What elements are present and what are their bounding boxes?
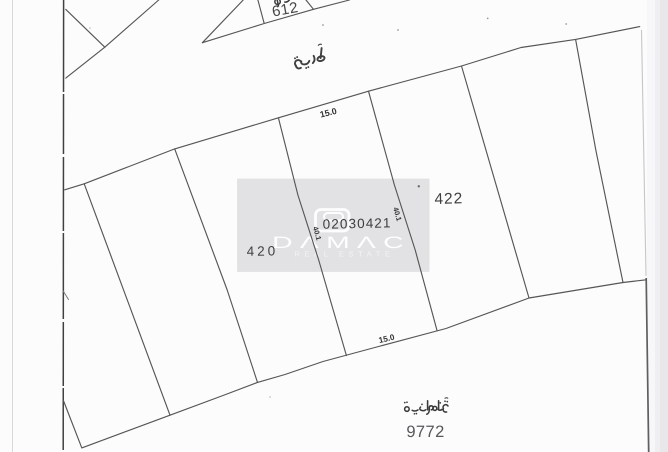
svg-text:420: 420	[247, 243, 279, 259]
svg-text:422: 422	[434, 190, 463, 208]
svg-text:9772: 9772	[406, 423, 444, 441]
svg-text:REAL ESTATE: REAL ESTATE	[294, 250, 394, 259]
svg-text:02030421: 02030421	[323, 215, 392, 231]
